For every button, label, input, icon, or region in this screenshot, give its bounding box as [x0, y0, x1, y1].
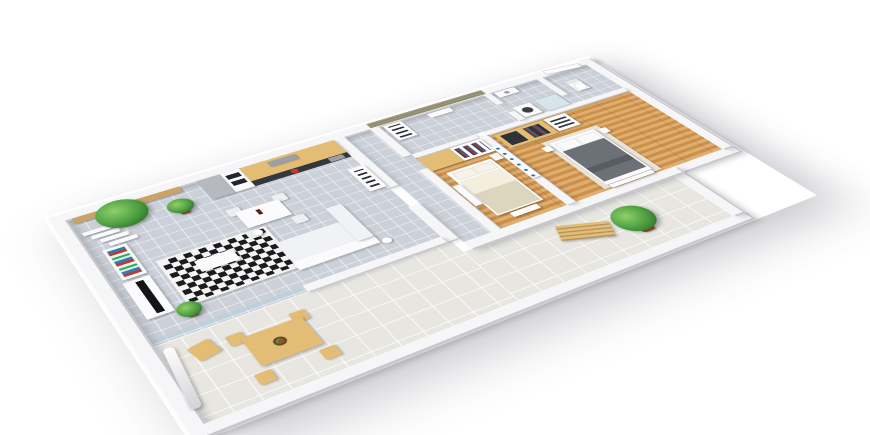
wardrobe-opening: [500, 131, 529, 145]
wardrobe-clothes: [522, 124, 551, 138]
apartment-plan: [48, 58, 811, 435]
wine-bottle: [255, 209, 263, 215]
washer-door: [520, 106, 536, 114]
fruit-bowl: [271, 335, 290, 347]
floorplan-scene: Two-bedroom apartment 3D floor plan with…: [0, 0, 870, 435]
microwave-window: [231, 178, 248, 186]
basin-bowl: [503, 91, 511, 95]
shelf-items: [549, 116, 575, 128]
